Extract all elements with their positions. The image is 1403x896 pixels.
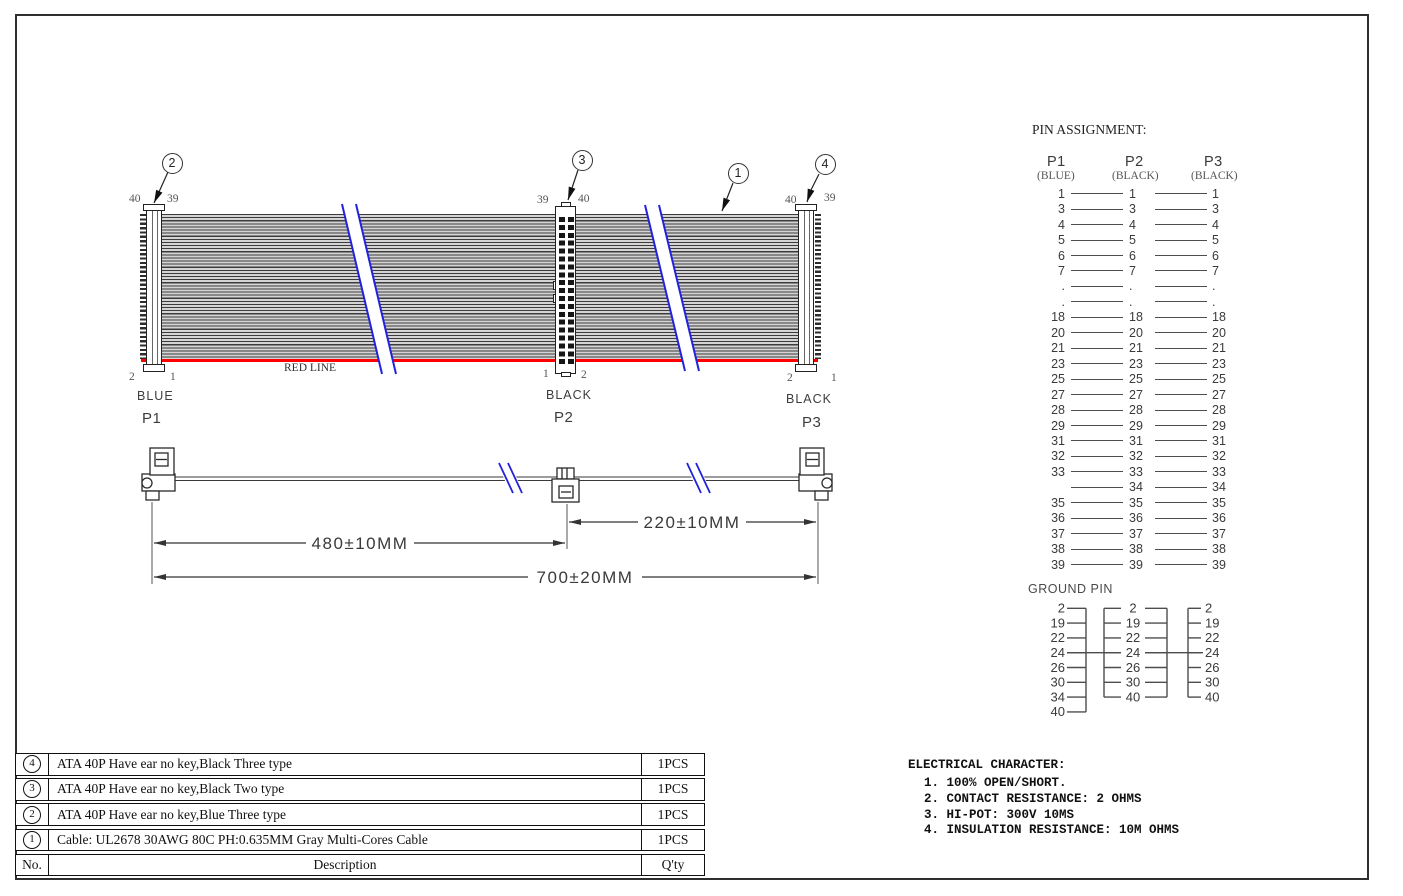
pin-wire-line (1155, 533, 1207, 534)
parts-desc-cell: Cable: UL2678 30AWG 80C PH:0.635MM Gray … (49, 830, 641, 851)
pin-wire-line (1155, 301, 1207, 302)
parts-no-cell: 1 (16, 830, 49, 851)
pin-wire-line (1071, 440, 1123, 441)
p2-pin-label-tl: 39 (537, 194, 549, 206)
pin-wire-line (1155, 425, 1207, 426)
p1-connector-cap-bottom (143, 364, 165, 372)
pin-wire-line (1155, 440, 1207, 441)
pin-number: 1 (1212, 187, 1219, 201)
electrical-item: 1. 100% OPEN/SHORT. (924, 776, 1179, 792)
pin-number: 1 (1128, 187, 1149, 201)
parts-desc-cell: ATA 40P Have ear no key,Black Two type (49, 779, 641, 800)
p2-connector-body (555, 206, 576, 374)
p3-pin-label-tr: 39 (824, 192, 836, 204)
pin-wire-line (1155, 549, 1207, 550)
p1-connector-cap-top (143, 204, 165, 211)
pin-number: 21 (1036, 341, 1065, 355)
pin-number: 35 (1128, 496, 1149, 510)
pin-row: 393939 (1036, 557, 1226, 572)
p1-pin-label-tl: 40 (129, 193, 141, 205)
pin-number: 23 (1212, 357, 1226, 371)
pin-number: 31 (1036, 434, 1065, 448)
pin-number: 38 (1128, 542, 1149, 556)
p3-color-label: BLACK (786, 392, 832, 406)
pin-wire-line (1155, 224, 1207, 225)
p1-pin-label-tr: 39 (167, 193, 179, 205)
pin-number: 27 (1036, 388, 1065, 402)
pin-row: 555 (1036, 232, 1226, 247)
parts-qty-cell: Q'ty (641, 855, 704, 876)
pin-number: 4 (1128, 218, 1149, 232)
pin-number: 38 (1212, 542, 1226, 556)
pin-wire-line (1155, 348, 1207, 349)
pin-number: 33 (1128, 465, 1149, 479)
p3-connector-body (798, 206, 814, 372)
balloon-3-p2: 3 (572, 150, 593, 171)
pin-wire-line (1155, 394, 1207, 395)
parts-table-row: 3ATA 40P Have ear no key,Black Two type1… (15, 778, 705, 801)
pin-wire-line (1071, 286, 1123, 287)
p2-pin-label-br: 2 (581, 369, 587, 381)
pin-wire-line (1071, 270, 1123, 271)
pin-wire-line (1071, 410, 1123, 411)
parts-table-row: 1Cable: UL2678 30AWG 80C PH:0.635MM Gray… (15, 829, 705, 852)
pin-number: 20 (1128, 326, 1149, 340)
p1-pin-label-br: 1 (170, 371, 176, 383)
electrical-items: 1. 100% OPEN/SHORT.2. CONTACT RESISTANCE… (908, 776, 1179, 839)
pin-row: 232323 (1036, 356, 1226, 371)
pin-wire-line (1071, 209, 1123, 210)
parts-desc-cell: ATA 40P Have ear no key,Black Three type (49, 754, 641, 775)
balloon-number: 1 (23, 831, 41, 849)
pin-number: . (1212, 279, 1215, 293)
p3-pin-label-tl: 40 (785, 194, 797, 206)
pin-number: 37 (1036, 527, 1065, 541)
parts-table: 4ATA 40P Have ear no key,Black Three typ… (15, 753, 705, 879)
p3-connector-cap-top (795, 204, 817, 211)
p2-name-label: P2 (554, 409, 573, 426)
pin-row: 373737 (1036, 526, 1226, 541)
pin-col-p2-color: (BLACK) (1112, 170, 1159, 182)
pin-wire-line (1071, 549, 1123, 550)
pin-wire-line (1155, 471, 1207, 472)
pin-row: ... (1036, 279, 1226, 294)
parts-no-cell: 4 (16, 754, 49, 775)
pin-number: 18 (1036, 310, 1065, 324)
pin-wire-line (1071, 456, 1123, 457)
pin-number: 35 (1036, 496, 1065, 510)
pin-wire-line (1071, 533, 1123, 534)
pin-wire-line (1071, 564, 1123, 565)
pin-wire-line (1071, 379, 1123, 380)
pin-number: . (1212, 295, 1215, 309)
pin-number: 36 (1128, 511, 1149, 525)
pin-number: . (1128, 279, 1149, 293)
p2-pin-label-tr: 40 (578, 193, 590, 205)
pin-number: 21 (1212, 341, 1226, 355)
pin-wire-line (1071, 363, 1123, 364)
p1-body-line (152, 207, 153, 371)
pin-wire-line (1155, 564, 1207, 565)
parts-table-row: 2ATA 40P Have ear no key,Blue Three type… (15, 803, 705, 826)
pin-row: 323232 (1036, 449, 1226, 464)
pin-wire-line (1155, 193, 1207, 194)
pin-number: 33 (1212, 465, 1226, 479)
pin-number: 18 (1128, 310, 1149, 324)
p2-pin-column (559, 217, 565, 367)
parts-qty-cell: 1PCS (641, 779, 704, 800)
pin-row: 313131 (1036, 433, 1226, 448)
pin-row: ... (1036, 294, 1226, 309)
p2-pin-label-bl: 1 (543, 368, 549, 380)
pin-col-p1-color: (BLUE) (1037, 170, 1075, 182)
pin-row: 272727 (1036, 387, 1226, 402)
pin-number: 29 (1128, 419, 1149, 433)
pin-number: 27 (1212, 388, 1226, 402)
pin-col-p3: P3 (1204, 154, 1223, 170)
pin-row: 111 (1036, 186, 1226, 201)
pin-row: 666 (1036, 248, 1226, 263)
pin-wire-line (1071, 471, 1123, 472)
pin-row: 181818 (1036, 310, 1226, 325)
pin-number: 39 (1212, 558, 1226, 572)
p1-body-line (157, 207, 158, 371)
pin-number: 3 (1128, 202, 1149, 216)
pin-wire-line (1071, 518, 1123, 519)
pin-number: 34 (1128, 480, 1149, 494)
p1-name-label: P1 (142, 410, 161, 427)
pin-row: 333 (1036, 201, 1226, 216)
pin-wire-line (1071, 332, 1123, 333)
red-line-stripe (141, 359, 818, 362)
pin-wire-line (1155, 456, 1207, 457)
pin-number: . (1036, 295, 1065, 309)
p3-connector-cap-bottom (795, 364, 817, 372)
pin-wire-line (1155, 518, 1207, 519)
electrical-notes: ELECTRICAL CHARACTER: 1. 100% OPEN/SHORT… (908, 758, 1179, 839)
p1-pin-label-bl: 2 (129, 371, 135, 383)
pin-row: 353535 (1036, 495, 1226, 510)
pin-number: 39 (1128, 558, 1149, 572)
p1-connector-body (146, 206, 162, 372)
p3-pin-label-br: 1 (831, 372, 837, 384)
pin-number: 28 (1212, 403, 1226, 417)
electrical-title: ELECTRICAL CHARACTER: (908, 758, 1179, 772)
ribbon-cable (162, 214, 798, 359)
balloon-number: 2 (23, 806, 41, 824)
pin-wire-line (1071, 348, 1123, 349)
pin-wire-line (1071, 224, 1123, 225)
pin-number: 23 (1036, 357, 1065, 371)
pin-row: 444 (1036, 217, 1226, 232)
pin-wire-line (1155, 317, 1207, 318)
pin-number: 36 (1036, 511, 1065, 525)
pin-number: 18 (1212, 310, 1226, 324)
balloon-2-p1: 2 (162, 153, 183, 174)
pin-number: 7 (1128, 264, 1149, 278)
balloon-number: 3 (23, 780, 41, 798)
pin-number: 37 (1212, 527, 1226, 541)
pin-col-p2: P2 (1125, 154, 1144, 170)
pin-wire-line (1155, 270, 1207, 271)
pin-number: 21 (1128, 341, 1149, 355)
pin-wire-line (1071, 502, 1123, 503)
pin-number: 28 (1036, 403, 1065, 417)
parts-table-row: 4ATA 40P Have ear no key,Black Three typ… (15, 753, 705, 776)
balloon-4-p3: 4 (815, 154, 836, 175)
parts-desc-cell: ATA 40P Have ear no key,Blue Three type (49, 804, 641, 825)
pin-number: 5 (1212, 233, 1219, 247)
pin-number: 25 (1036, 372, 1065, 386)
p2-color-label: BLACK (546, 388, 592, 402)
parts-qty-cell: 1PCS (641, 830, 704, 851)
pin-number: 5 (1128, 233, 1149, 247)
pin-row: 252525 (1036, 371, 1226, 386)
pin-number: 31 (1128, 434, 1149, 448)
pin-number: 27 (1128, 388, 1149, 402)
pin-row: 292929 (1036, 418, 1226, 433)
pin-wire-line (1071, 193, 1123, 194)
pin-wire-line (1155, 332, 1207, 333)
pin-wire-line (1071, 317, 1123, 318)
pin-wire-line (1071, 394, 1123, 395)
pin-row: 212121 (1036, 341, 1226, 356)
p3-body-line (804, 207, 805, 371)
pin-number: 25 (1128, 372, 1149, 386)
p3-body-line (809, 207, 810, 371)
pin-wire-line (1071, 301, 1123, 302)
pin-col-p3-color: (BLACK) (1191, 170, 1238, 182)
pin-wire-line (1071, 240, 1123, 241)
electrical-item: 3. HI-POT: 300V 10MS (924, 808, 1179, 824)
pin-number: 3 (1212, 202, 1219, 216)
pin-wire-line (1155, 209, 1207, 210)
pin-wire-line (1071, 255, 1123, 256)
pin-wire-line (1155, 255, 1207, 256)
p3-connector-teeth (815, 214, 822, 359)
pin-number: 5 (1036, 233, 1065, 247)
pin-wire-line (1155, 487, 1207, 488)
pin-number: 20 (1036, 326, 1065, 340)
pin-number: 25 (1212, 372, 1226, 386)
pin-number: 31 (1212, 434, 1226, 448)
pin-row: 363636 (1036, 511, 1226, 526)
pin-number: 4 (1036, 218, 1065, 232)
p3-pin-label-bl: 2 (787, 372, 793, 384)
parts-desc-cell: Description (49, 855, 641, 876)
parts-qty-cell: 1PCS (641, 804, 704, 825)
pin-number: 35 (1212, 496, 1226, 510)
pin-wire-line (1155, 502, 1207, 503)
pin-assignment-title: PIN ASSIGNMENT: (1032, 122, 1146, 138)
pin-wire-line (1155, 379, 1207, 380)
red-line-label: RED LINE (284, 362, 336, 374)
pin-number: 7 (1212, 264, 1219, 278)
pin-row: 333333 (1036, 464, 1226, 479)
pin-number: . (1036, 279, 1065, 293)
pin-number: 32 (1036, 449, 1065, 463)
pin-wire-line (1155, 286, 1207, 287)
pin-row: 777 (1036, 263, 1226, 278)
pin-number: 32 (1128, 449, 1149, 463)
pin-number: 38 (1036, 542, 1065, 556)
pin-number: 32 (1212, 449, 1226, 463)
pin-number: 23 (1128, 357, 1149, 371)
pin-number: 6 (1036, 249, 1065, 263)
parts-qty-cell: 1PCS (641, 754, 704, 775)
pin-number: 33 (1036, 465, 1065, 479)
pin-number: 39 (1036, 558, 1065, 572)
pin-row: 282828 (1036, 402, 1226, 417)
electrical-item: 2. CONTACT RESISTANCE: 2 OHMS (924, 792, 1179, 808)
pin-row: 202020 (1036, 325, 1226, 340)
pin-wire-line (1155, 240, 1207, 241)
parts-table-header: No.DescriptionQ'ty (15, 854, 705, 877)
p1-color-label: BLUE (137, 389, 174, 403)
pin-assignment-rows: 111333444555666777......1818182020202121… (1036, 186, 1226, 572)
pin-number: 29 (1036, 419, 1065, 433)
pin-col-p1: P1 (1047, 154, 1066, 170)
pin-number: 6 (1212, 249, 1219, 263)
pin-wire-line (1155, 410, 1207, 411)
pin-number: 6 (1128, 249, 1149, 263)
electrical-item: 4. INSULATION RESISTANCE: 10M OHMS (924, 823, 1179, 839)
p2-pin-column (568, 217, 574, 367)
pin-number: 34 (1212, 480, 1226, 494)
pin-wire-line (1071, 425, 1123, 426)
p2-side-latch (553, 294, 556, 303)
parts-no-cell: 3 (16, 779, 49, 800)
pin-number: 1 (1036, 187, 1065, 201)
pin-number: 7 (1036, 264, 1065, 278)
pin-row: 3434 (1036, 480, 1226, 495)
balloon-1-cable: 1 (728, 163, 749, 184)
p2-side-latch (553, 281, 556, 290)
pin-wire-line (1155, 363, 1207, 364)
pin-number: 20 (1212, 326, 1226, 340)
pin-number: 4 (1212, 218, 1219, 232)
p3-name-label: P3 (802, 414, 821, 431)
pin-row: 383838 (1036, 541, 1226, 556)
pin-number: 28 (1128, 403, 1149, 417)
pin-number: 29 (1212, 419, 1226, 433)
parts-no-cell: No. (16, 855, 49, 876)
pin-number: 3 (1036, 202, 1065, 216)
ground-pin-title: GROUND PIN (1028, 582, 1113, 596)
balloon-number: 4 (23, 755, 41, 773)
pin-wire-line (1071, 487, 1123, 488)
drawing-sheet: RED LINE 40 39 2 1 BLUE P1 39 40 1 2 BLA… (0, 0, 1403, 896)
pin-number: . (1128, 295, 1149, 309)
pin-number: 36 (1212, 511, 1226, 525)
parts-no-cell: 2 (16, 804, 49, 825)
p2-connector-notch-bottom (561, 372, 571, 377)
pin-number: 37 (1128, 527, 1149, 541)
